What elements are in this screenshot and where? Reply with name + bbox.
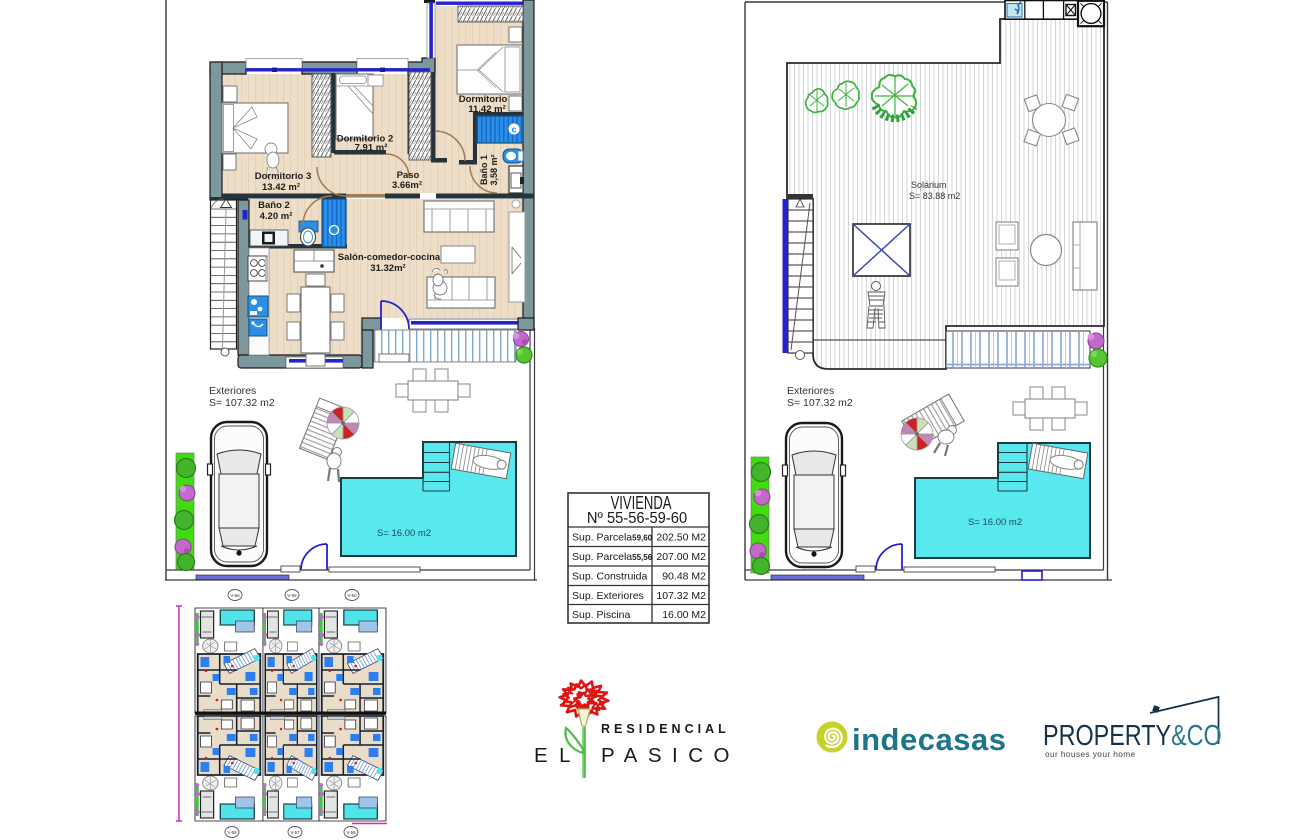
svg-text:V-58: V-58 <box>346 830 356 835</box>
svg-text:Sup. Piscina: Sup. Piscina <box>572 609 631 621</box>
svg-text:S= 16.00 m2: S= 16.00 m2 <box>968 517 1022 528</box>
svg-text:S= 107.32 m2: S= 107.32 m2 <box>787 397 853 409</box>
svg-text:31.32m²: 31.32m² <box>370 263 405 274</box>
svg-text:Baño 2: Baño 2 <box>258 200 290 211</box>
svg-text:207.00 M2: 207.00 M2 <box>656 551 706 563</box>
svg-text:EL: EL <box>534 744 582 767</box>
svg-text:4.20 m²: 4.20 m² <box>260 211 293 222</box>
svg-text:PROPERTY&CO: PROPERTY&CO <box>1043 719 1222 752</box>
svg-text:Baño 1: Baño 1 <box>479 155 489 185</box>
svg-text:Sup. Exteriores: Sup. Exteriores <box>572 590 644 602</box>
svg-text:Exteriores: Exteriores <box>787 385 834 397</box>
svg-text:RESIDENCIAL: RESIDENCIAL <box>601 722 730 736</box>
svg-text:Sup. Construida: Sup. Construida <box>572 571 647 583</box>
svg-text:V-66: V-66 <box>230 593 240 598</box>
svg-text:indecasas: indecasas <box>852 722 1006 757</box>
svg-text:S= 16.00 m2: S= 16.00 m2 <box>377 528 431 539</box>
svg-text:Sup. Parcela59,60: Sup. Parcela59,60 <box>572 532 653 544</box>
svg-text:S= 107.32 m2: S= 107.32 m2 <box>209 397 275 409</box>
svg-text:90.48 M2: 90.48 M2 <box>662 571 706 583</box>
svg-text:Salón-comedor-cocina: Salón-comedor-cocina <box>338 252 441 263</box>
svg-text:11.42 m²: 11.42 m² <box>468 104 506 115</box>
svg-text:7.91 m²: 7.91 m² <box>355 143 388 154</box>
svg-text:16.00 M2: 16.00 M2 <box>662 609 706 621</box>
svg-text:Exteriores: Exteriores <box>209 385 256 397</box>
svg-text:V-60: V-60 <box>347 593 357 598</box>
svg-text:Dormitorio 3: Dormitorio 3 <box>255 171 311 182</box>
svg-text:202.50 M2: 202.50 M2 <box>656 532 706 544</box>
svg-text:13.42 m²: 13.42 m² <box>262 182 300 193</box>
svg-text:3.66m²: 3.66m² <box>392 180 422 191</box>
svg-text:our houses your home: our houses your home <box>1045 749 1136 759</box>
svg-text:V-65: V-65 <box>287 593 297 598</box>
svg-text:Sup. Parcela55,56: Sup. Parcela55,56 <box>572 551 653 563</box>
svg-text:c: c <box>511 125 516 135</box>
svg-text:3,58 m²: 3,58 m² <box>489 154 499 185</box>
svg-text:PASICO: PASICO <box>601 744 740 767</box>
svg-text:Solárium: Solárium <box>911 180 947 190</box>
svg-text:Nº 55-56-59-60: Nº 55-56-59-60 <box>587 510 687 527</box>
svg-text:V-57: V-57 <box>290 830 300 835</box>
svg-text:107.32 M2: 107.32 M2 <box>656 590 706 602</box>
svg-text:S= 83.88 m2: S= 83.88 m2 <box>909 191 960 201</box>
svg-text:V-59: V-59 <box>227 830 237 835</box>
